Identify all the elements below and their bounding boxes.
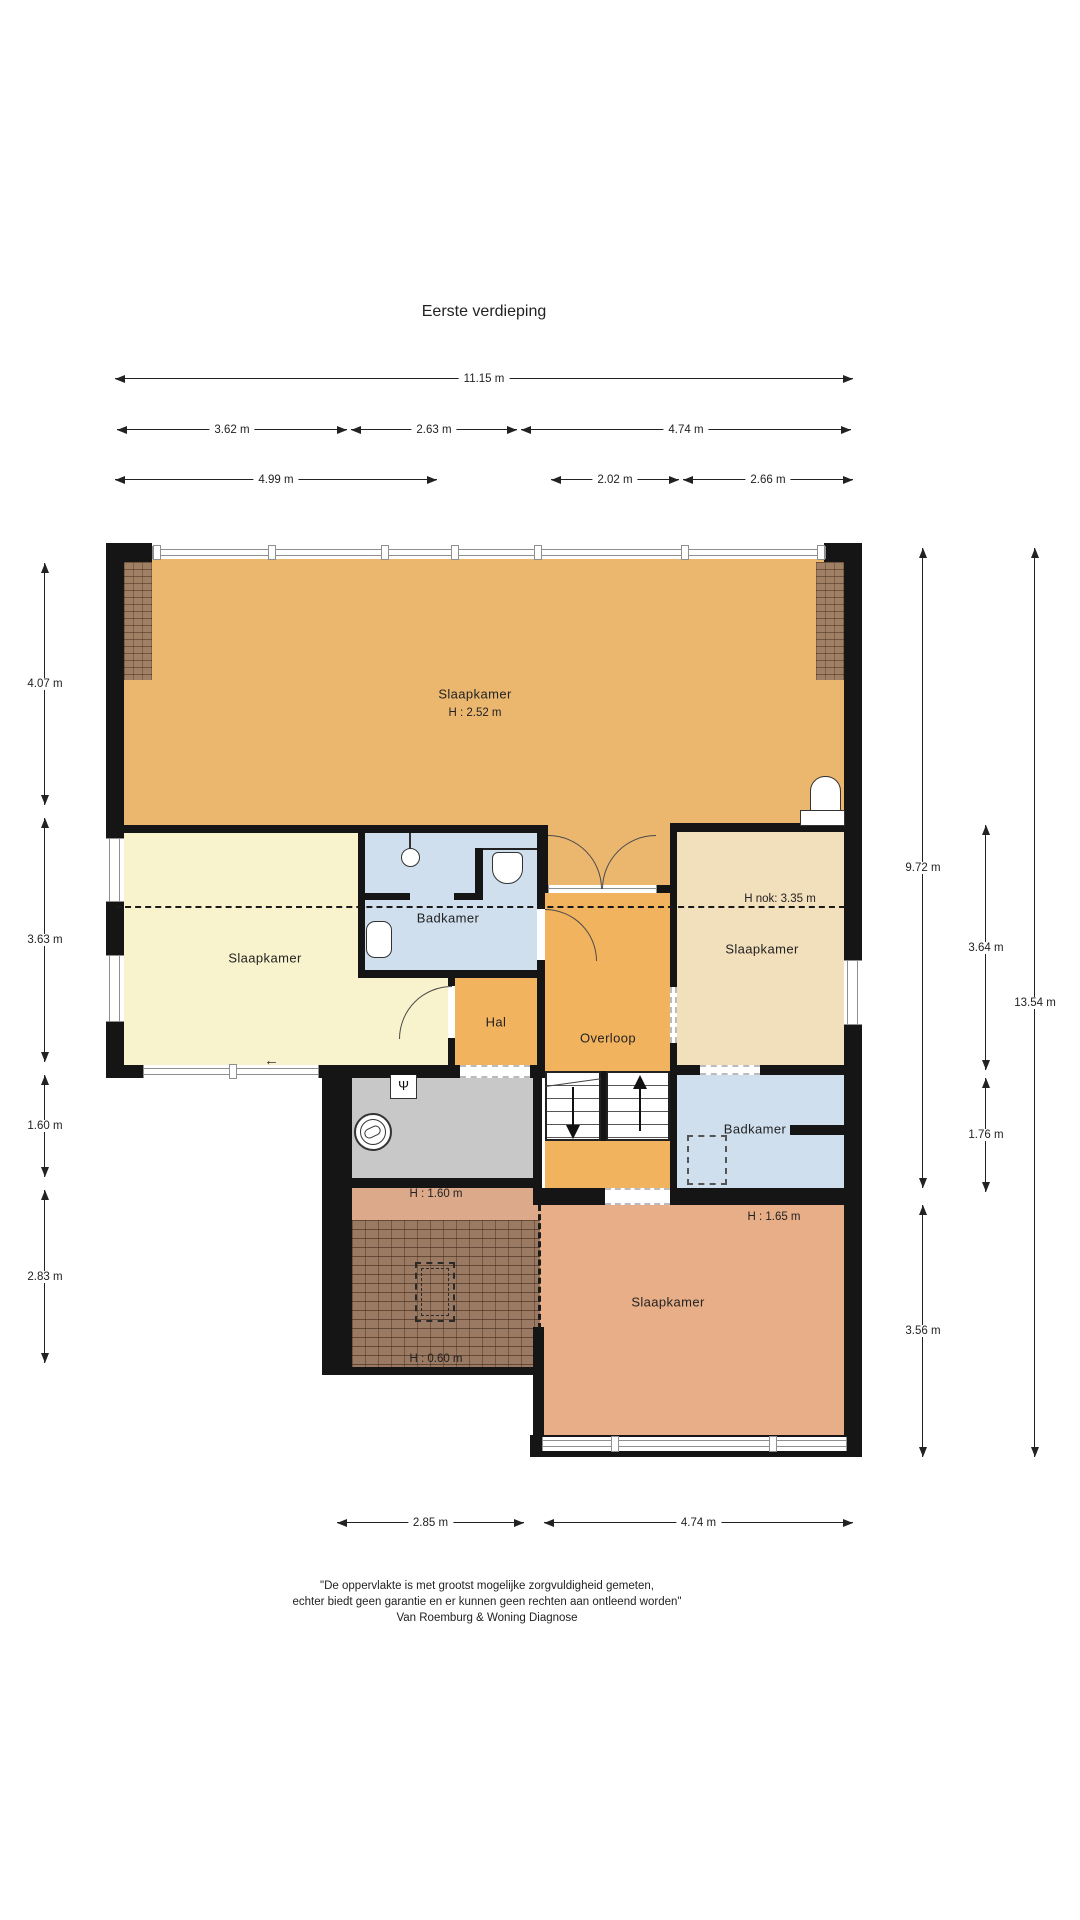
- dim-left-407: 4.07 m: [44, 563, 45, 805]
- bathtub-icon: [366, 921, 392, 958]
- wall-badkamer-right-top: [670, 1065, 862, 1075]
- sink-icon: [401, 848, 420, 867]
- dim-right-176: 1.76 m: [985, 1078, 986, 1192]
- wall-bottom-left-corner: [106, 1065, 143, 1078]
- wall-badkamer-stub-2: [454, 893, 475, 900]
- opening-overloop-bottom: [605, 1188, 670, 1205]
- stairs-up-shaft: [639, 1085, 641, 1131]
- opening-badkamer-door: [537, 909, 545, 960]
- roof-strip-left: [124, 562, 152, 680]
- toilet-icon-top: [810, 776, 841, 813]
- footer-disclaimer: "De oppervlakte is met grootst mogelijke…: [187, 1578, 787, 1626]
- shower-dashed-icon: [687, 1135, 727, 1185]
- window-bottom: [542, 1437, 847, 1451]
- label-slaapkamer-left: Slaapkamer: [228, 951, 301, 966]
- stairs-down-arrow-icon: [566, 1125, 580, 1139]
- wall-wasruimte-right: [533, 1065, 542, 1190]
- room-slaapkamer-left: [124, 833, 358, 1065]
- wall-top-left-corner: [106, 543, 152, 562]
- stairs-up: [606, 1071, 670, 1141]
- dim-top-499: 4.99 m: [115, 479, 437, 480]
- tap-icon: Ψ: [390, 1075, 417, 1099]
- opening-bedroom-right-door: [670, 987, 677, 1043]
- label-overloop: Overloop: [580, 1031, 636, 1046]
- label-slaapkamer-right-nok: H nok: 3.35 m: [744, 893, 816, 905]
- toilet-icon-badkamer: [492, 852, 523, 884]
- wall-badkamer-right-stub: [790, 1125, 845, 1135]
- label-badkamer-right: Badkamer: [724, 1122, 786, 1137]
- window-left-1: [106, 838, 124, 902]
- label-slaapkamer-bottom-height: H : 1.65 m: [747, 1211, 800, 1223]
- dim-bottom-285: 2.85 m: [337, 1522, 524, 1523]
- wall-west-thick: [322, 1065, 352, 1373]
- sink-stem-icon: [409, 833, 411, 849]
- label-berging-height: H : 1.60 m: [409, 1188, 462, 1200]
- wall-badkamer-stub-1: [358, 893, 410, 900]
- dim-bottom-474: 4.74 m: [544, 1522, 853, 1523]
- page-title: Eerste verdieping: [422, 303, 547, 321]
- window-right: [844, 960, 862, 1025]
- dim-left-283: 2.83 m: [44, 1190, 45, 1363]
- label-dak-height: H : 0.60 m: [409, 1353, 462, 1365]
- label-slaapkamer-top-height: H : 2.52 m: [448, 707, 501, 719]
- opening-badkamer-right: [700, 1065, 760, 1075]
- wall-overloop-bottom: [533, 1188, 862, 1205]
- dim-right-972: 9.72 m: [922, 548, 923, 1188]
- dim-top-266: 2.66 m: [683, 479, 853, 480]
- roof-strip-right: [816, 562, 844, 680]
- floorplan-canvas: Eerste verdieping: [0, 0, 1080, 1920]
- label-slaapkamer-right: Slaapkamer: [725, 942, 798, 957]
- direction-arrow-icon: ←: [264, 1056, 279, 1066]
- stairs-up-arrow-icon: [633, 1075, 647, 1089]
- room-slaapkamer-bottom: [540, 1205, 845, 1435]
- dim-top-263: 2.63 m: [351, 429, 517, 430]
- dim-right-364: 3.64 m: [985, 825, 986, 1070]
- label-slaapkamer-bottom: Slaapkamer: [631, 1295, 704, 1310]
- window-top: [152, 546, 826, 559]
- dim-left-160: 1.60 m: [44, 1075, 45, 1177]
- wall-chunk-left-of-doors: [537, 825, 548, 893]
- dim-top-362: 3.62 m: [117, 429, 347, 430]
- wall-wasruimte-bottom: [322, 1178, 542, 1188]
- wall-bedroom-bottom: [106, 825, 548, 833]
- footer-line-1: "De oppervlakte is met grootst mogelijke…: [187, 1578, 787, 1594]
- dashed-boundary: [538, 1205, 541, 1329]
- dim-left-363: 3.63 m: [44, 818, 45, 1062]
- wall-badkamer-left: [358, 833, 365, 977]
- window-left-2: [106, 955, 124, 1022]
- dim-right-356: 3.56 m: [922, 1205, 923, 1457]
- dim-top-474: 4.74 m: [521, 429, 851, 430]
- opening-hal-wasruimte: [460, 1065, 530, 1078]
- dim-top-202: 2.02 m: [551, 479, 679, 480]
- toilet-line-icon: [483, 848, 537, 850]
- label-slaapkamer-top: Slaapkamer: [438, 687, 511, 702]
- stairs-down: [545, 1071, 601, 1141]
- label-badkamer-left: Badkamer: [417, 911, 479, 926]
- chimney-dashed-icon: [415, 1262, 455, 1322]
- stairs-break-line: [545, 1078, 603, 1087]
- wall-toilet-nook: [475, 848, 483, 900]
- window-yellow-bottom: [143, 1065, 319, 1078]
- toilet-tank-icon-top: [800, 810, 845, 826]
- stairs-down-shaft: [572, 1087, 574, 1129]
- nok-dashed-line: [115, 906, 845, 908]
- label-hal: Hal: [486, 1015, 507, 1030]
- wall-tiles-bottom: [322, 1367, 540, 1375]
- footer-line-3: Van Roemburg & Woning Diagnose: [187, 1610, 787, 1626]
- footer-line-2: echter biedt geen garantie en er kunnen …: [187, 1594, 787, 1610]
- dim-total-width: 11.15 m: [115, 378, 853, 379]
- dim-right-1354: 13.54 m: [1034, 548, 1035, 1457]
